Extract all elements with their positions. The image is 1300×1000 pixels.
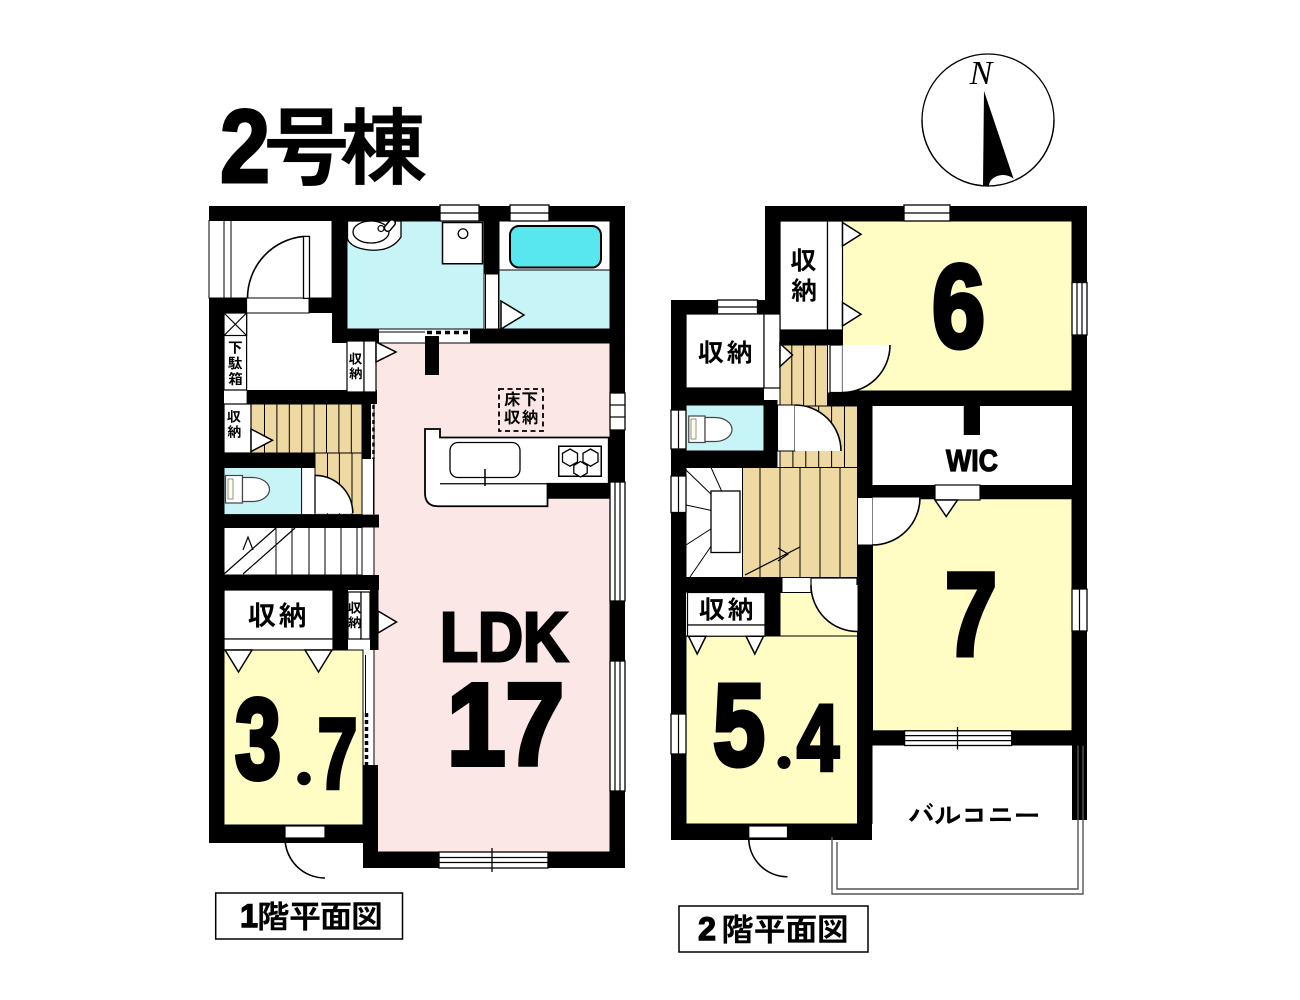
- svg-text:5: 5: [713, 660, 765, 790]
- svg-text:2: 2: [220, 89, 270, 205]
- svg-text:17: 17: [447, 660, 564, 790]
- svg-text:3: 3: [235, 676, 281, 803]
- svg-text:N: N: [969, 55, 995, 92]
- svg-text:7: 7: [945, 549, 997, 681]
- svg-text:WIC: WIC: [946, 443, 998, 478]
- svg-text:2: 2: [698, 911, 716, 947]
- svg-text:1: 1: [240, 898, 258, 934]
- svg-text:6: 6: [932, 241, 985, 373]
- svg-text:4: 4: [797, 685, 839, 790]
- svg-text:7: 7: [318, 698, 358, 810]
